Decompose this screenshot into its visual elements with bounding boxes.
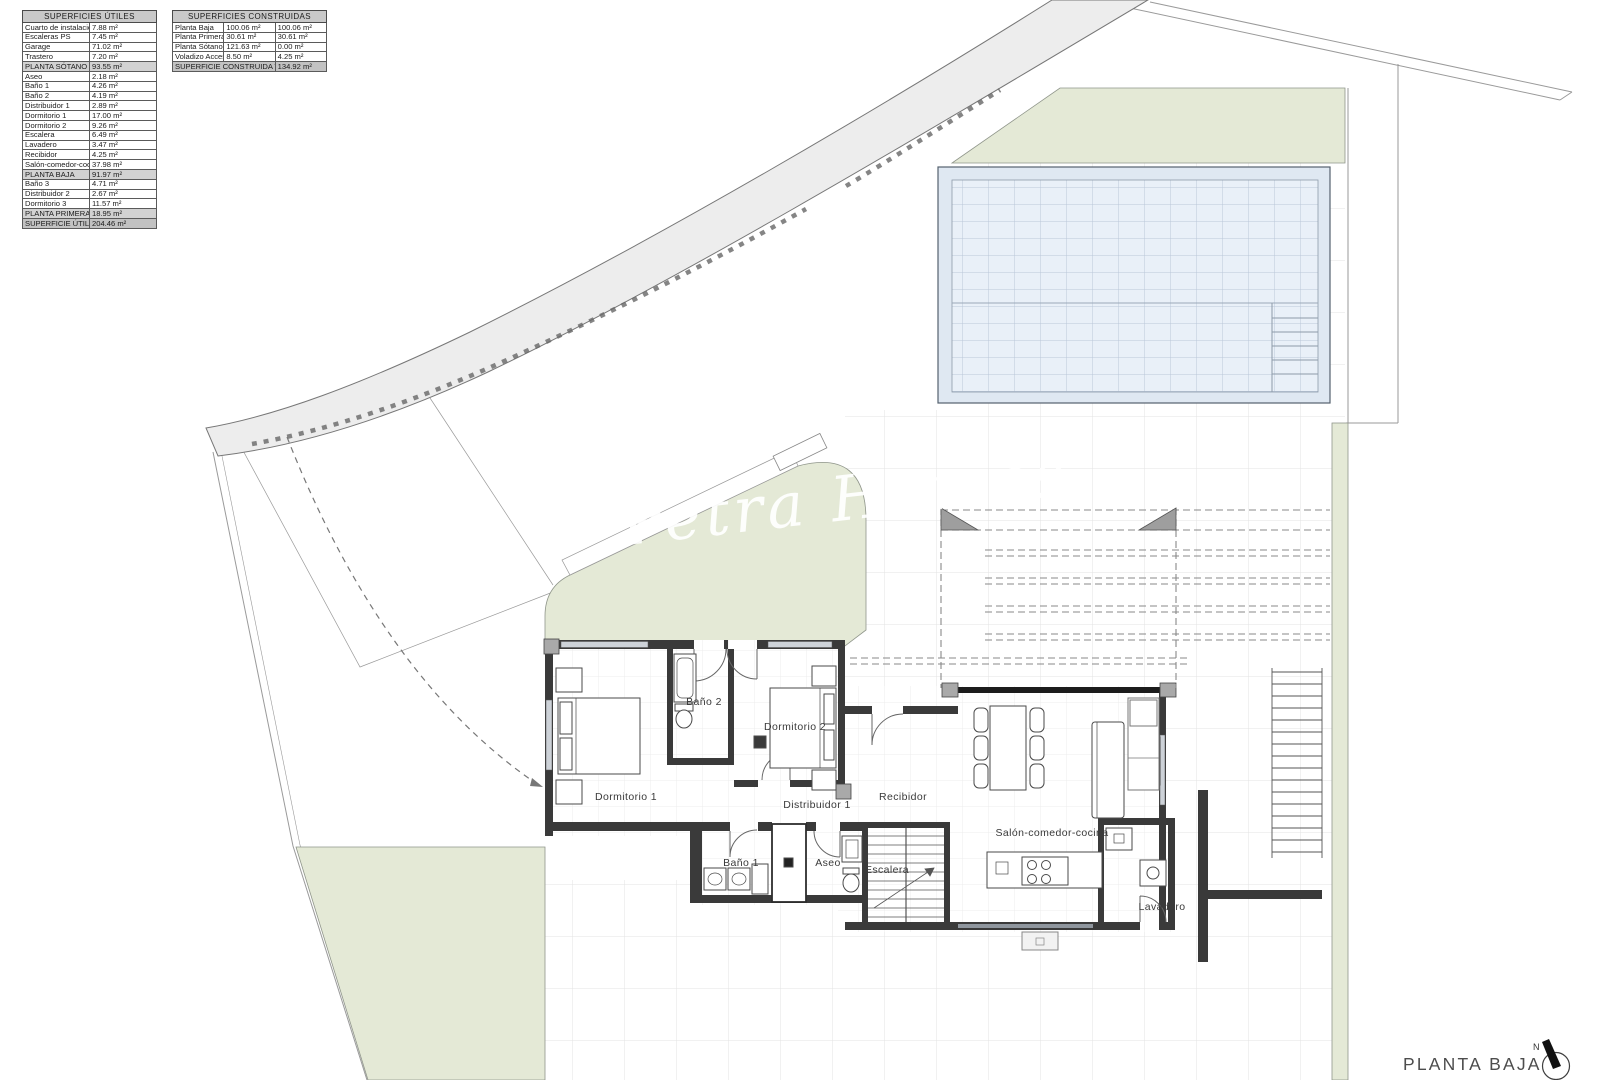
surface-row-value: 100.06 m² xyxy=(224,23,275,33)
surface-row-label: Lavadero xyxy=(23,140,90,150)
surface-row-value: 4.25 m² xyxy=(90,150,157,160)
toilet xyxy=(843,868,859,874)
surface-row-value: 6.49 m² xyxy=(90,130,157,140)
chair xyxy=(974,764,988,788)
surface-row-value: 204.46 m² xyxy=(90,218,157,228)
surface-row-label: Voladizo Acceso(50%) xyxy=(173,52,224,62)
table-row: SUPERFICIE ÚTIL TOTAL204.46 m² xyxy=(23,218,157,228)
surface-row-value: 4.19 m² xyxy=(90,91,157,101)
sliding-glass-wall xyxy=(958,687,1160,693)
plan-title: PLANTA BAJA xyxy=(1403,1054,1542,1075)
table-row: PLANTA SÓTANO93.55 m² xyxy=(23,62,157,72)
room-label-escalera: Escalera xyxy=(865,864,909,876)
surface-row-value: 4.71 m² xyxy=(90,179,157,189)
surface-row-label: Dormitorio 3 xyxy=(23,199,90,209)
window xyxy=(546,700,552,770)
dining-table xyxy=(990,706,1026,790)
surface-row-label: Recibidor xyxy=(23,150,90,160)
room-label-bano-2: Baño 2 xyxy=(686,696,722,708)
surface-row-value: 0.00 m² xyxy=(275,42,326,52)
window xyxy=(1160,735,1165,805)
table-row: Baño 24.19 m² xyxy=(23,91,157,101)
surface-row-label: Garage xyxy=(23,42,90,52)
chair xyxy=(974,736,988,760)
room-label-recibidor: Recibidor xyxy=(879,791,927,803)
kitchen-counter xyxy=(1128,698,1159,790)
garden-strip-right xyxy=(1332,423,1348,1080)
surface-row-value: 134.92 m² xyxy=(275,62,326,72)
room-label-bano-1: Baño 1 xyxy=(723,857,759,869)
sink xyxy=(728,868,750,890)
room-label-salon-comedor-cocina: Salón-comedor-cocina xyxy=(995,827,1108,839)
surface-row-value: 3.47 m² xyxy=(90,140,157,150)
table-row: Distribuidor 12.89 m² xyxy=(23,101,157,111)
surface-row-value: 7.88 m² xyxy=(90,23,157,33)
surface-row-value: 2.18 m² xyxy=(90,71,157,81)
room-label-lavadero: Lavadero xyxy=(1139,901,1186,913)
surface-row-label: Cuarto de instalaciones xyxy=(23,23,90,33)
surface-row-value: 2.89 m² xyxy=(90,101,157,111)
pool xyxy=(938,167,1330,403)
glass-door xyxy=(958,924,1093,928)
table-row: Trastero7.20 m² xyxy=(23,52,157,62)
floor-plan-sheet: N SUPERFICIES ÚTILESCuarto de instalacio… xyxy=(0,0,1620,1080)
table-row: Dormitorio 311.57 m² xyxy=(23,199,157,209)
surface-row-value: 7.20 m² xyxy=(90,52,157,62)
table-row: Cuarto de instalaciones7.88 m² xyxy=(23,23,157,33)
table-row: Dormitorio 117.00 m² xyxy=(23,111,157,121)
surface-row-value: 7.45 m² xyxy=(90,32,157,42)
surface-row-label: Escalera xyxy=(23,130,90,140)
garden-strip-top xyxy=(952,88,1345,163)
surface-row-label: Planta Baja xyxy=(173,23,224,33)
surface-row-value: 18.95 m² xyxy=(90,209,157,219)
site-plan-drawing: N xyxy=(0,0,1620,1080)
table-row: PLANTA BAJA91.97 m² xyxy=(23,169,157,179)
chair xyxy=(1030,708,1044,732)
table-row: Voladizo Acceso(50%)8.50 m²4.25 m² xyxy=(173,52,327,62)
surface-row-label: Distribuidor 1 xyxy=(23,101,90,111)
surface-row-label: Aseo xyxy=(23,71,90,81)
surface-row-value: 30.61 m² xyxy=(275,32,326,42)
superficies-utiles-table: SUPERFICIES ÚTILESCuarto de instalacione… xyxy=(22,10,157,229)
laundry-sink xyxy=(1106,828,1132,850)
room-label-distribuidor-1: Distribuidor 1 xyxy=(783,799,850,811)
driveway-path xyxy=(287,437,543,787)
surface-row-label: Baño 2 xyxy=(23,91,90,101)
table-title: SUPERFICIES ÚTILES xyxy=(23,11,157,23)
table-row: Recibidor4.25 m² xyxy=(23,150,157,160)
surface-row-value: 30.61 m² xyxy=(224,32,275,42)
surface-row-label: Trastero xyxy=(23,52,90,62)
superficies-construidas-table: SUPERFICIES CONSTRUIDASPlanta Baja100.06… xyxy=(172,10,327,72)
surface-row-value: 9.26 m² xyxy=(90,120,157,130)
surface-row-label: Distribuidor 2 xyxy=(23,189,90,199)
table-row: Lavadero3.47 m² xyxy=(23,140,157,150)
room-label-aseo: Aseo xyxy=(815,857,841,869)
garden-bottom-left xyxy=(296,847,545,1080)
sink xyxy=(704,868,726,890)
table-row: Escalera6.49 m² xyxy=(23,130,157,140)
surface-row-label: Planta Primera xyxy=(173,32,224,42)
table-row: Baño 34.71 m² xyxy=(23,179,157,189)
surface-row-value: 100.06 m² xyxy=(275,23,326,33)
table-row: Salón-comedor-cocina37.98 m² xyxy=(23,160,157,170)
surface-row-label: SUPERFICIE ÚTIL TOTAL xyxy=(23,218,90,228)
chair xyxy=(974,708,988,732)
table-row: Planta Sótano(0%)121.63 m²0.00 m² xyxy=(173,42,327,52)
room-label-dormitorio-1: Dormitorio 1 xyxy=(595,791,657,803)
window xyxy=(561,642,648,648)
surface-row-value: 91.97 m² xyxy=(90,169,157,179)
table-row: Aseo2.18 m² xyxy=(23,71,157,81)
table-row: Baño 14.26 m² xyxy=(23,81,157,91)
surface-row-label: Planta Sótano(0%) xyxy=(173,42,224,52)
pool-water xyxy=(952,180,1318,392)
surface-row-value: 71.02 m² xyxy=(90,42,157,52)
room-label-dormitorio-2: Dormitorio 2 xyxy=(764,721,826,733)
surface-row-label: SUPERFICIE CONSTRUIDA TOTAL xyxy=(173,62,276,72)
surface-row-value: 4.26 m² xyxy=(90,81,157,91)
surface-row-label: Salón-comedor-cocina xyxy=(23,160,90,170)
surface-row-value: 2.67 m² xyxy=(90,189,157,199)
table-row: SUPERFICIE CONSTRUIDA TOTAL134.92 m² xyxy=(173,62,327,72)
surface-row-value: 121.63 m² xyxy=(224,42,275,52)
surface-row-value: 37.98 m² xyxy=(90,160,157,170)
table-row: PLANTA PRIMERA18.95 m² xyxy=(23,209,157,219)
washing-machine xyxy=(1140,860,1166,886)
surface-row-value: 93.55 m² xyxy=(90,62,157,72)
surface-row-label: PLANTA PRIMERA xyxy=(23,209,90,219)
table-row: Planta Primera30.61 m²30.61 m² xyxy=(173,32,327,42)
surface-row-label: Dormitorio 1 xyxy=(23,111,90,121)
table-row: Escaleras PS7.45 m² xyxy=(23,32,157,42)
window xyxy=(768,642,832,648)
chair xyxy=(1030,736,1044,760)
surface-row-label: Baño 3 xyxy=(23,179,90,189)
surface-row-label: PLANTA BAJA xyxy=(23,169,90,179)
table-row: Dormitorio 29.26 m² xyxy=(23,120,157,130)
surface-row-value: 4.25 m² xyxy=(275,52,326,62)
table-row: Distribuidor 22.67 m² xyxy=(23,189,157,199)
surface-row-value: 11.57 m² xyxy=(90,199,157,209)
surface-row-label: Dormitorio 2 xyxy=(23,120,90,130)
chair xyxy=(1030,764,1044,788)
surface-row-value: 17.00 m² xyxy=(90,111,157,121)
north-label: N xyxy=(1533,1042,1540,1052)
surface-row-label: Escaleras PS xyxy=(23,32,90,42)
table-row: Garage71.02 m² xyxy=(23,42,157,52)
table-row: Planta Baja100.06 m²100.06 m² xyxy=(173,23,327,33)
table-title: SUPERFICIES CONSTRUIDAS xyxy=(173,11,327,23)
surface-row-label: Baño 1 xyxy=(23,81,90,91)
surface-row-value: 8.50 m² xyxy=(224,52,275,62)
surface-row-label: PLANTA SÓTANO xyxy=(23,62,90,72)
